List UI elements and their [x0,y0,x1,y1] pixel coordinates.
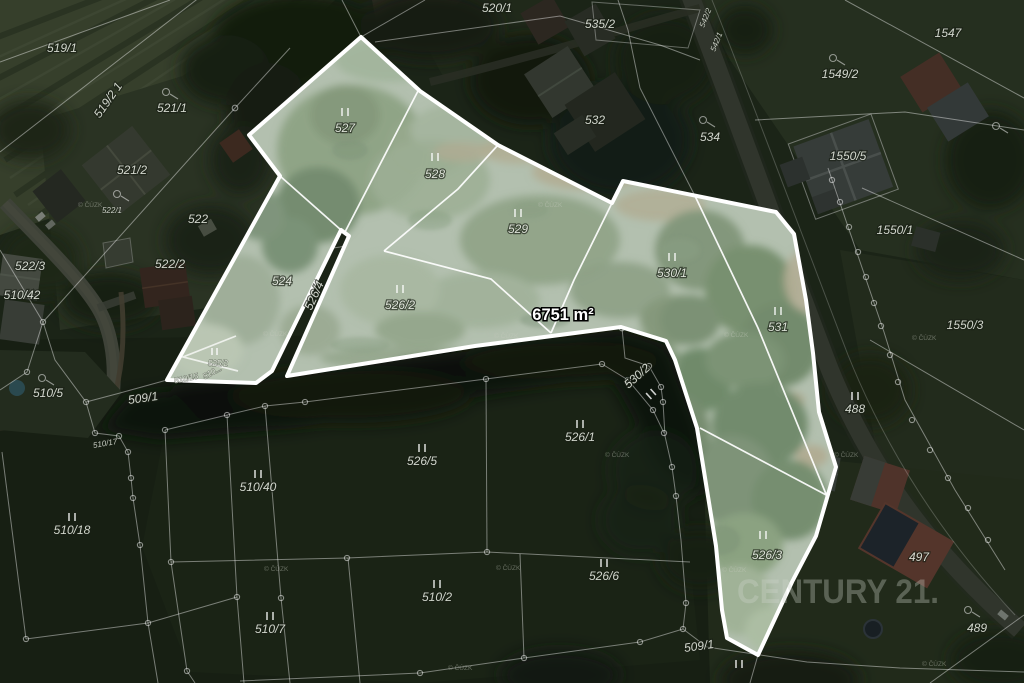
svg-text:© ČÚZK: © ČÚZK [724,330,749,339]
svg-text:529: 529 [508,222,528,236]
svg-text:528: 528 [425,167,445,181]
svg-text:1549/2: 1549/2 [822,67,859,81]
svg-text:489: 489 [967,621,987,635]
svg-text:527: 527 [335,121,356,135]
svg-text:© ČÚZK: © ČÚZK [834,450,859,459]
svg-text:526/2: 526/2 [385,298,415,312]
svg-text:535/2: 535/2 [585,17,615,31]
svg-text:1550/5: 1550/5 [830,149,867,163]
svg-text:524: 524 [272,274,292,288]
svg-text:520/1: 520/1 [482,1,512,15]
svg-text:510/18: 510/18 [54,523,91,537]
svg-text:526/5: 526/5 [407,454,437,468]
svg-text:© ČÚZK: © ČÚZK [263,329,288,338]
svg-text:522/1: 522/1 [102,206,122,215]
svg-text:© ČÚZK: © ČÚZK [538,200,563,209]
svg-text:519/1: 519/1 [47,41,77,55]
svg-text:© ČÚZK: © ČÚZK [922,659,947,668]
svg-text:522/2: 522/2 [155,257,185,271]
svg-text:© ČÚZK: © ČÚZK [448,663,473,672]
svg-text:521/2: 521/2 [117,163,147,177]
svg-text:1550/3: 1550/3 [947,318,984,332]
svg-text:532: 532 [585,113,605,127]
svg-text:521/1: 521/1 [157,101,187,115]
svg-text:CENTURY 21.: CENTURY 21. [737,573,939,611]
svg-text:497: 497 [909,550,930,564]
svg-text:© ČÚZK: © ČÚZK [494,331,519,340]
svg-text:526/1: 526/1 [565,430,595,444]
svg-text:510/2: 510/2 [422,590,452,604]
svg-text:522: 522 [188,212,208,226]
svg-text:510/7: 510/7 [255,622,286,636]
svg-text:6751 m²: 6751 m² [532,306,594,324]
svg-text:510/5: 510/5 [33,386,63,400]
svg-text:526/3: 526/3 [752,548,782,562]
svg-text:1550/1: 1550/1 [877,223,914,237]
svg-text:© ČÚZK: © ČÚZK [722,565,747,574]
svg-text:© ČÚZK: © ČÚZK [605,450,630,459]
svg-text:© ČÚZK: © ČÚZK [912,333,937,342]
svg-text:© ČÚZK: © ČÚZK [78,200,103,209]
svg-text:526/6: 526/6 [589,569,619,583]
svg-text:530/1: 530/1 [657,266,687,280]
svg-text:510/40: 510/40 [240,480,277,494]
svg-text:522/3: 522/3 [15,259,45,273]
svg-text:534: 534 [700,130,720,144]
svg-text:1547: 1547 [935,26,963,40]
svg-text:531: 531 [768,320,788,334]
svg-text:510/42: 510/42 [4,288,41,302]
svg-text:488: 488 [845,402,865,416]
svg-text:© ČÚZK: © ČÚZK [264,564,289,573]
svg-text:© ČÚZK: © ČÚZK [496,563,521,572]
